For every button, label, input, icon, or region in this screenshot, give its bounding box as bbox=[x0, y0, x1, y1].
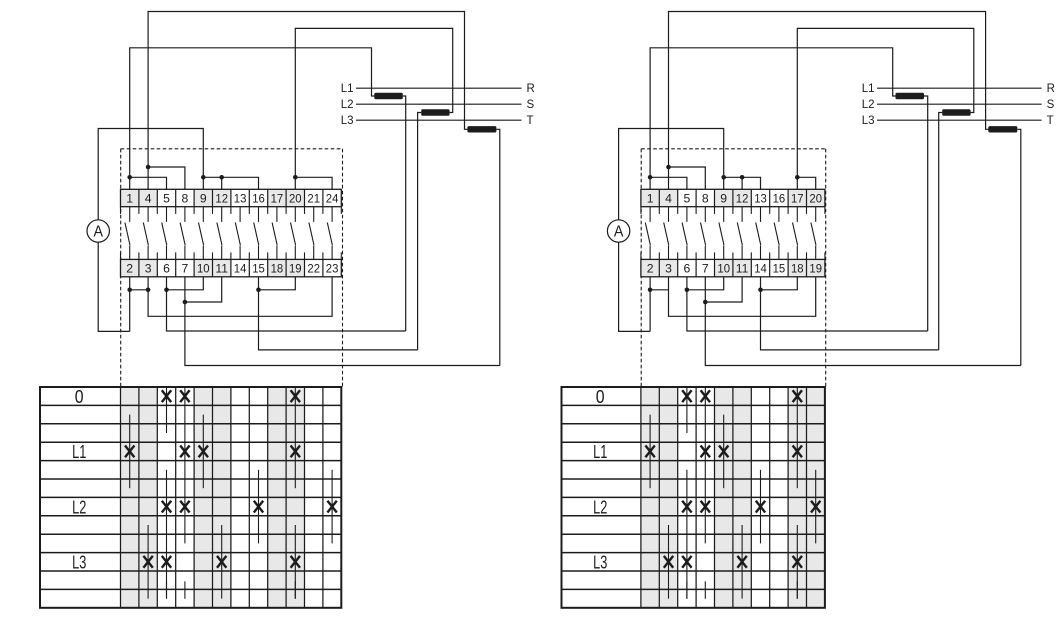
svg-text:T: T bbox=[1047, 115, 1054, 127]
svg-text:12: 12 bbox=[215, 192, 228, 206]
svg-text:9: 9 bbox=[720, 192, 727, 206]
svg-text:S: S bbox=[527, 99, 535, 111]
svg-text:L1: L1 bbox=[72, 442, 86, 462]
svg-text:10: 10 bbox=[717, 262, 730, 276]
svg-text:1: 1 bbox=[126, 192, 133, 206]
svg-text:24: 24 bbox=[326, 192, 339, 206]
svg-text:L3: L3 bbox=[341, 115, 354, 127]
svg-text:6: 6 bbox=[684, 262, 691, 276]
svg-text:17: 17 bbox=[791, 192, 804, 206]
svg-text:10: 10 bbox=[197, 262, 210, 276]
svg-text:1: 1 bbox=[647, 192, 654, 206]
svg-text:19: 19 bbox=[289, 262, 302, 276]
svg-text:L1: L1 bbox=[341, 83, 354, 95]
svg-text:19: 19 bbox=[809, 262, 822, 276]
svg-text:8: 8 bbox=[702, 192, 709, 206]
svg-text:4: 4 bbox=[145, 192, 152, 206]
svg-text:18: 18 bbox=[271, 262, 284, 276]
svg-text:L2: L2 bbox=[72, 497, 86, 517]
svg-text:0: 0 bbox=[596, 387, 605, 407]
svg-text:14: 14 bbox=[234, 262, 247, 276]
svg-text:7: 7 bbox=[702, 262, 709, 276]
svg-text:5: 5 bbox=[163, 192, 170, 206]
svg-text:23: 23 bbox=[326, 262, 339, 276]
svg-text:18: 18 bbox=[791, 262, 804, 276]
svg-text:L1: L1 bbox=[862, 83, 875, 95]
svg-text:5: 5 bbox=[684, 192, 691, 206]
svg-text:4: 4 bbox=[665, 192, 672, 206]
svg-text:3: 3 bbox=[665, 262, 672, 276]
svg-text:6: 6 bbox=[163, 262, 170, 276]
svg-text:L2: L2 bbox=[593, 497, 607, 517]
svg-text:17: 17 bbox=[271, 192, 284, 206]
svg-text:7: 7 bbox=[182, 262, 189, 276]
svg-text:20: 20 bbox=[809, 192, 822, 206]
svg-text:R: R bbox=[1047, 83, 1055, 95]
svg-text:L1: L1 bbox=[593, 442, 607, 462]
svg-text:T: T bbox=[527, 115, 534, 127]
svg-text:L2: L2 bbox=[341, 99, 354, 111]
svg-text:12: 12 bbox=[736, 192, 749, 206]
svg-text:11: 11 bbox=[736, 262, 749, 276]
svg-text:L2: L2 bbox=[862, 99, 875, 111]
svg-text:11: 11 bbox=[215, 262, 228, 276]
svg-text:A: A bbox=[614, 224, 624, 241]
svg-text:16: 16 bbox=[252, 192, 265, 206]
svg-text:3: 3 bbox=[145, 262, 152, 276]
svg-text:L3: L3 bbox=[862, 115, 875, 127]
svg-text:A: A bbox=[93, 224, 103, 241]
svg-text:2: 2 bbox=[647, 262, 654, 276]
svg-text:2: 2 bbox=[126, 262, 133, 276]
svg-text:0: 0 bbox=[75, 387, 84, 407]
svg-text:R: R bbox=[527, 83, 535, 95]
svg-text:22: 22 bbox=[307, 262, 320, 276]
svg-text:L3: L3 bbox=[593, 553, 607, 573]
svg-text:13: 13 bbox=[234, 192, 247, 206]
svg-text:21: 21 bbox=[307, 192, 320, 206]
svg-text:16: 16 bbox=[773, 192, 786, 206]
svg-text:L3: L3 bbox=[72, 553, 86, 573]
svg-text:9: 9 bbox=[200, 192, 207, 206]
svg-text:13: 13 bbox=[754, 192, 767, 206]
svg-text:20: 20 bbox=[289, 192, 302, 206]
svg-text:15: 15 bbox=[773, 262, 786, 276]
svg-text:14: 14 bbox=[754, 262, 767, 276]
svg-text:15: 15 bbox=[252, 262, 265, 276]
svg-text:S: S bbox=[1047, 99, 1055, 111]
svg-text:8: 8 bbox=[182, 192, 189, 206]
